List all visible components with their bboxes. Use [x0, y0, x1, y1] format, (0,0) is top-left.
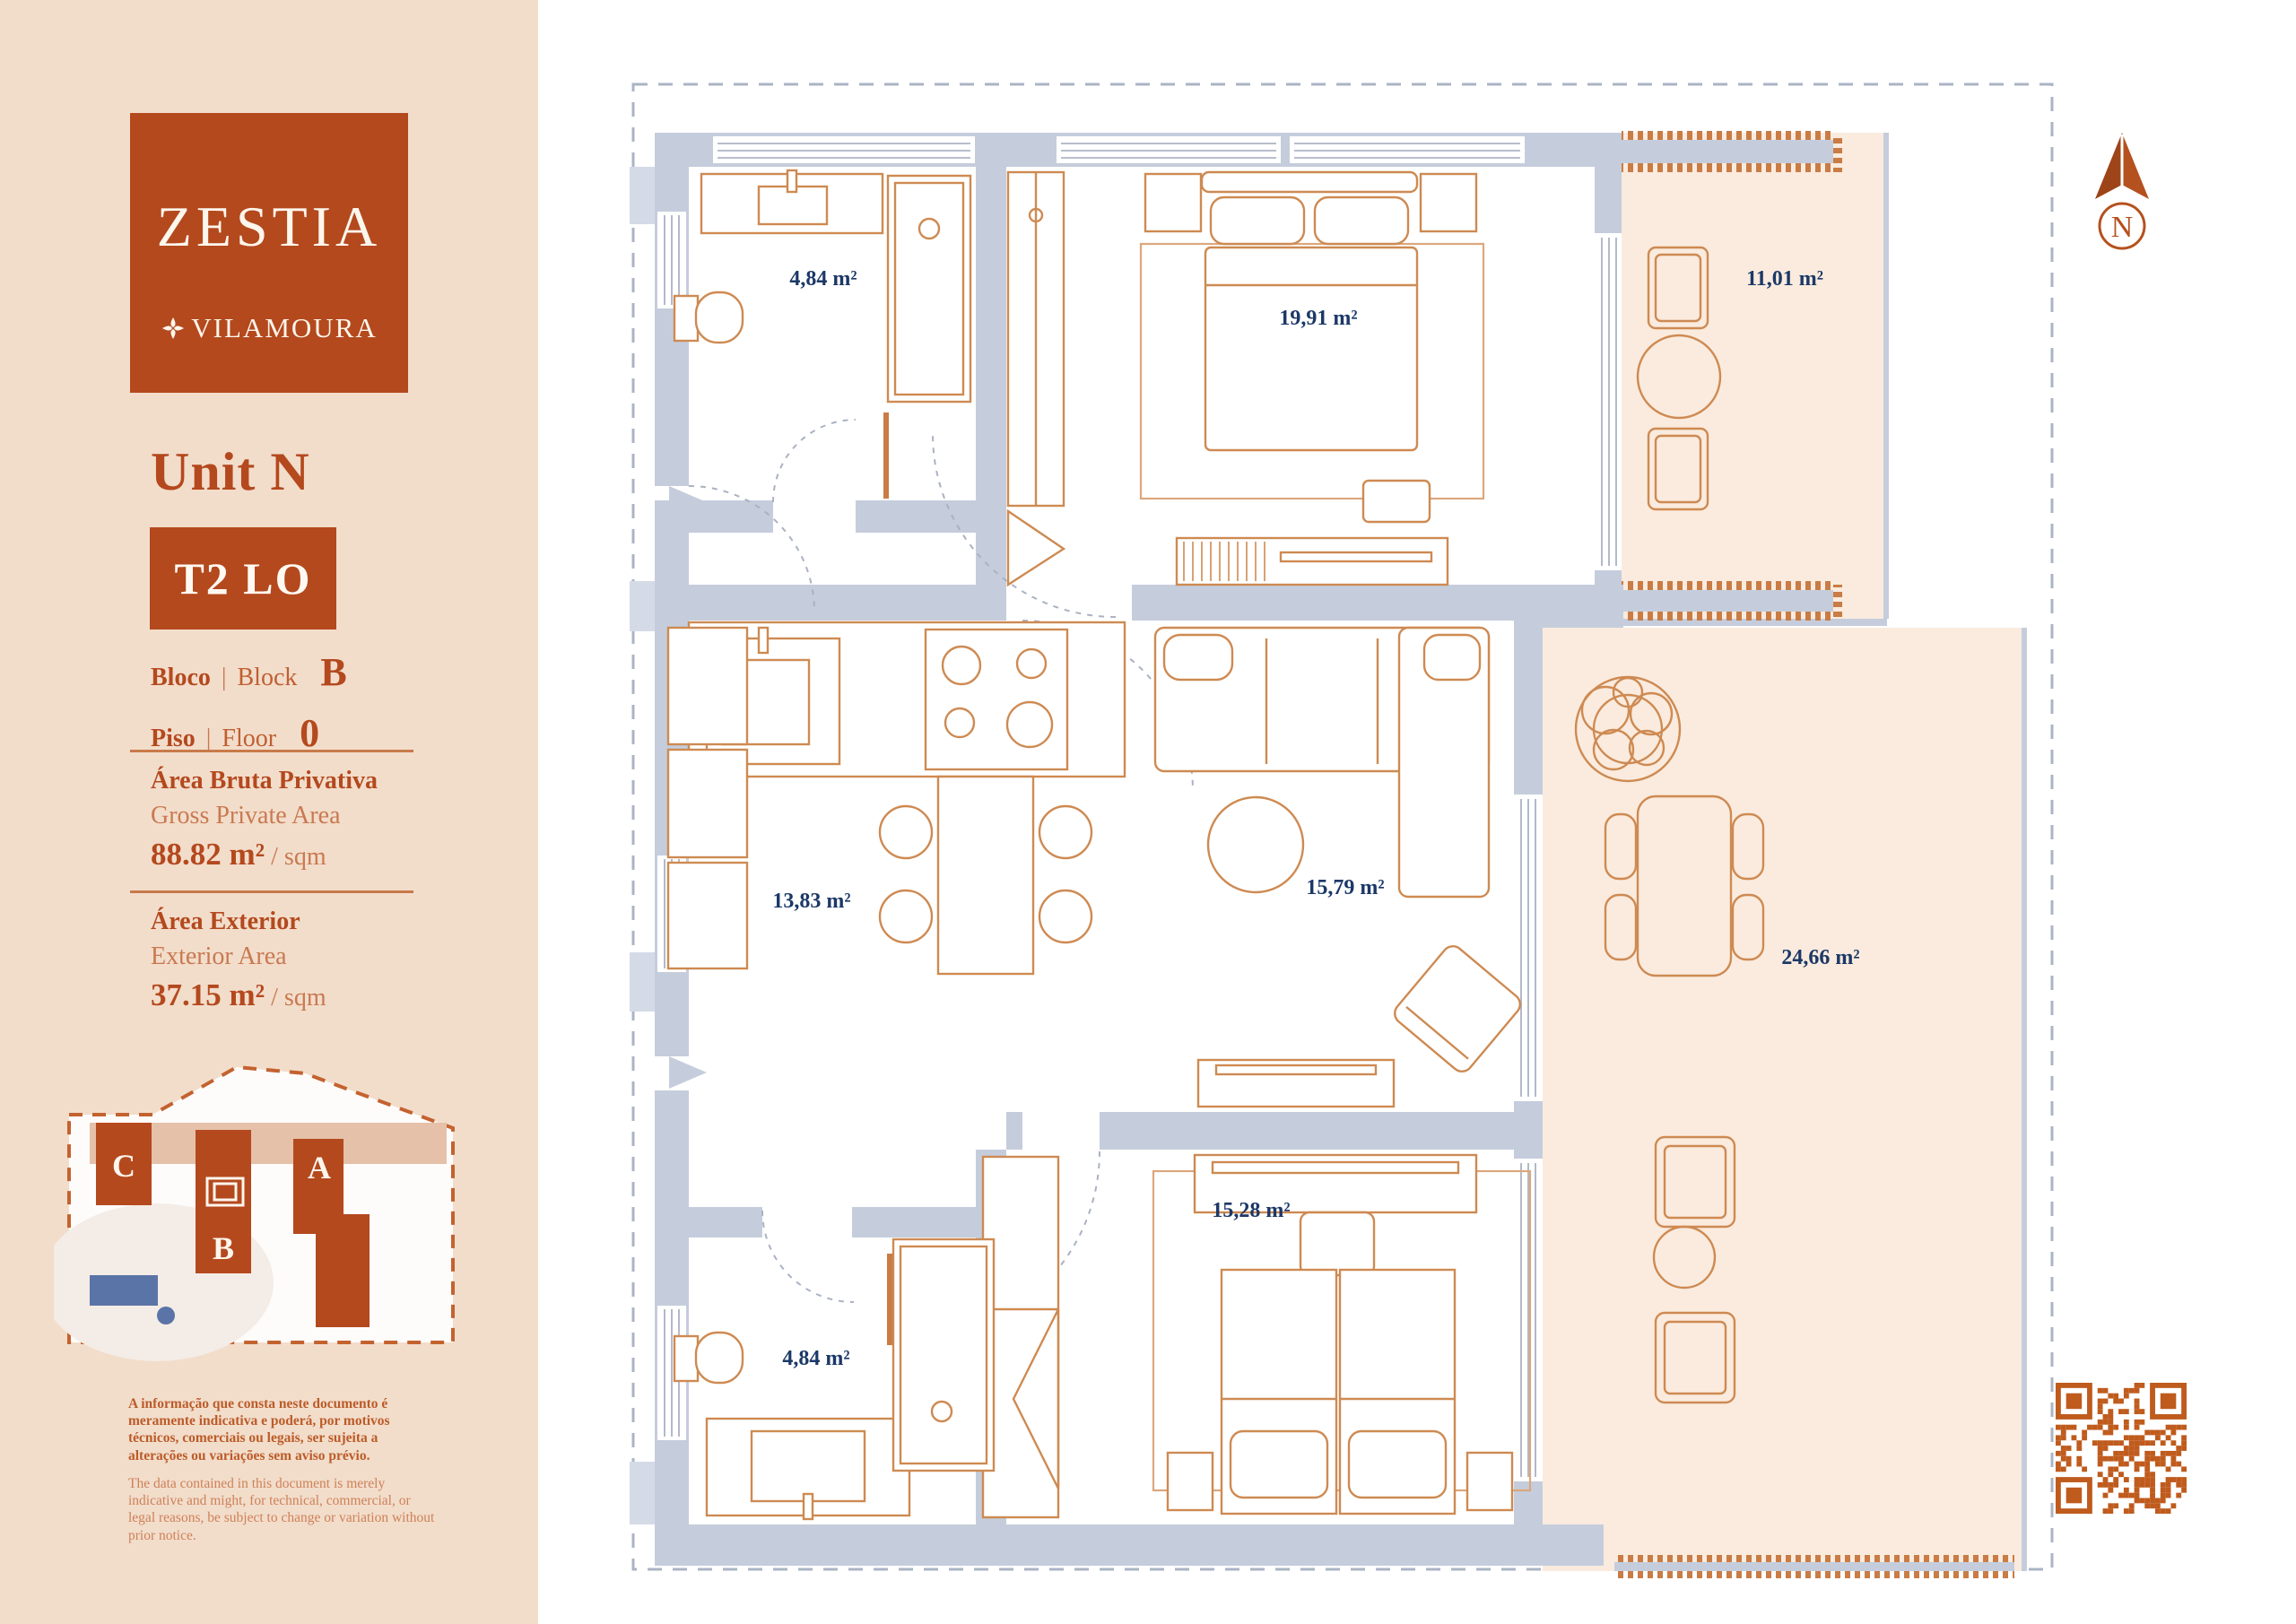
bathroom-2-furniture [674, 1239, 994, 1519]
divider [130, 890, 413, 893]
divider [130, 750, 413, 752]
bedroom-1-furniture [1141, 172, 1483, 585]
block-value: B [320, 642, 346, 703]
sidebar: ZESTIA VILAMOURA Unit N T2 LO Bloco [0, 0, 538, 1624]
compass-north-label: N [2111, 211, 2134, 244]
label-bedroom-2: 15,28 m² [1212, 1199, 1290, 1222]
floorplan-page: ZESTIA VILAMOURA Unit N T2 LO Bloco [0, 0, 2296, 1624]
floor-value: 0 [300, 703, 319, 764]
svg-text:A: A [308, 1150, 331, 1185]
pool-rect [90, 1275, 158, 1306]
site-plan-map: C B A [54, 1058, 475, 1372]
unit-name: Unit N [151, 441, 310, 503]
svg-text:B: B [213, 1230, 234, 1266]
label-bathroom-1: 4,84 m² [789, 267, 857, 291]
brand-name: ZESTIA [157, 194, 381, 260]
zestia-logo: ZESTIA VILAMOURA [130, 113, 408, 393]
block-floor-facts: Bloco | Block B Piso | Floor 0 [151, 642, 347, 764]
unit-location-marker-icon [207, 1178, 243, 1205]
svg-text:C: C [112, 1148, 135, 1184]
wardrobe-1 [1008, 172, 1064, 585]
flower-mark-icon [161, 316, 186, 341]
sliding-door-bedroom-1 [1595, 233, 1622, 570]
disclaimer: A informação que consta neste documento … [128, 1395, 440, 1544]
floor-row: Piso | Floor 0 [151, 703, 347, 764]
label-terrace-1: 11,01 m² [1746, 267, 1823, 291]
north-compass-icon: N [2077, 117, 2176, 269]
disclaimer-en: The data contained in this document is m… [128, 1475, 440, 1544]
exterior-area-block: Área Exterior Exterior Area 37.15 m² / s… [151, 907, 326, 1014]
pool-circle [157, 1307, 175, 1324]
unit-type: T2 LO [174, 552, 311, 604]
label-bedroom-1: 19,91 m² [1279, 307, 1357, 330]
pergola-hatch-mid [1622, 581, 1842, 621]
living-room-furniture [1155, 628, 1525, 1107]
disclaimer-pt: A informação que consta neste documento … [128, 1395, 440, 1464]
kitchen-furniture [668, 622, 1125, 974]
gross-area-block: Área Bruta Privativa Gross Private Area … [151, 766, 378, 873]
pergola-hatch-bottom [1614, 1555, 2014, 1578]
label-kitchen: 13,83 m² [772, 890, 850, 913]
unit-type-badge: T2 LO [150, 527, 336, 630]
label-bathroom-2: 4,84 m² [782, 1347, 849, 1370]
label-exterior: 24,66 m² [1781, 946, 1859, 969]
block-row: Bloco | Block B [151, 642, 347, 703]
pergola-hatch-top [1622, 131, 1842, 172]
brand-location: VILAMOURA [191, 312, 377, 344]
qr-code [2056, 1383, 2187, 1514]
floor-plan: 4,84 m² 19,91 m² 11,01 m² 13,83 m² 15,79… [574, 63, 2099, 1587]
sliding-door-bedroom-2 [1514, 1159, 1543, 1481]
entrance-arrow-icon-2 [669, 1056, 707, 1089]
terrace-1-floor [1622, 133, 1887, 619]
exterior-area-value: 37.15 m² [151, 977, 265, 1012]
site-block-c: C [96, 1123, 152, 1205]
gross-area-value: 88.82 m² [151, 837, 265, 872]
bathroom-1-furniture [674, 170, 970, 499]
label-living-room: 15,79 m² [1306, 876, 1384, 899]
sliding-door-living [1514, 795, 1543, 1101]
